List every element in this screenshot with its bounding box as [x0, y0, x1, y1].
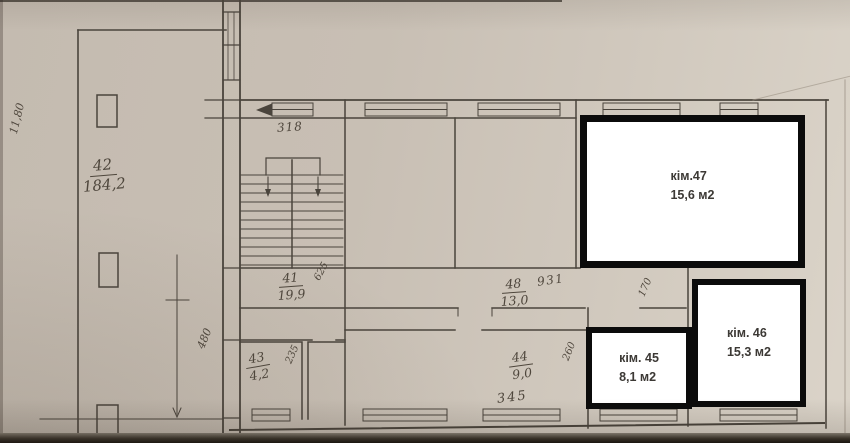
north-wall-windows: [240, 100, 828, 116]
room-44-area-label: 449,0: [507, 347, 535, 382]
dim-318: 318: [277, 119, 304, 135]
room-45-name: кім. 45: [619, 349, 659, 368]
west-wall: [223, 0, 240, 443]
corridor-48-area: 13,0: [500, 292, 529, 309]
room-47-name: кім.47: [670, 167, 714, 186]
south-wall-windows: [230, 409, 824, 430]
paper-crease-diagonal: [753, 76, 850, 100]
room-41-area-label: 4119,9: [276, 269, 306, 303]
room-47-area: 15,6 м2: [670, 186, 714, 205]
room-42-area: 184,2: [82, 174, 126, 195]
room-46-name: кім. 46: [727, 324, 771, 343]
corridor-48-area-label: 4813,0: [499, 275, 529, 309]
floor-plan-scan: 42184,2 11,80 318 4119,9 625 4813,0 931 …: [0, 0, 850, 443]
room-44-area: 9,0: [511, 365, 533, 383]
room-45-area: 8,1 м2: [619, 368, 659, 387]
corridor-48-number: 48: [501, 276, 526, 294]
room-highlight-46: кім. 46 15,3 м2: [692, 279, 806, 407]
room-46-area: 15,3 м2: [727, 343, 771, 362]
room-42-number: 42: [88, 156, 117, 177]
room-highlight-47: кім.47 15,6 м2: [580, 115, 805, 268]
scan-edge-bottom: [0, 433, 850, 443]
room-41-area: 19,9: [277, 286, 306, 303]
room-41-number: 41: [278, 270, 303, 288]
room-42-area-label: 42184,2: [80, 154, 126, 195]
room-highlight-45: кім. 45 8,1 м2: [586, 327, 692, 409]
left-room-walls: [40, 30, 226, 443]
